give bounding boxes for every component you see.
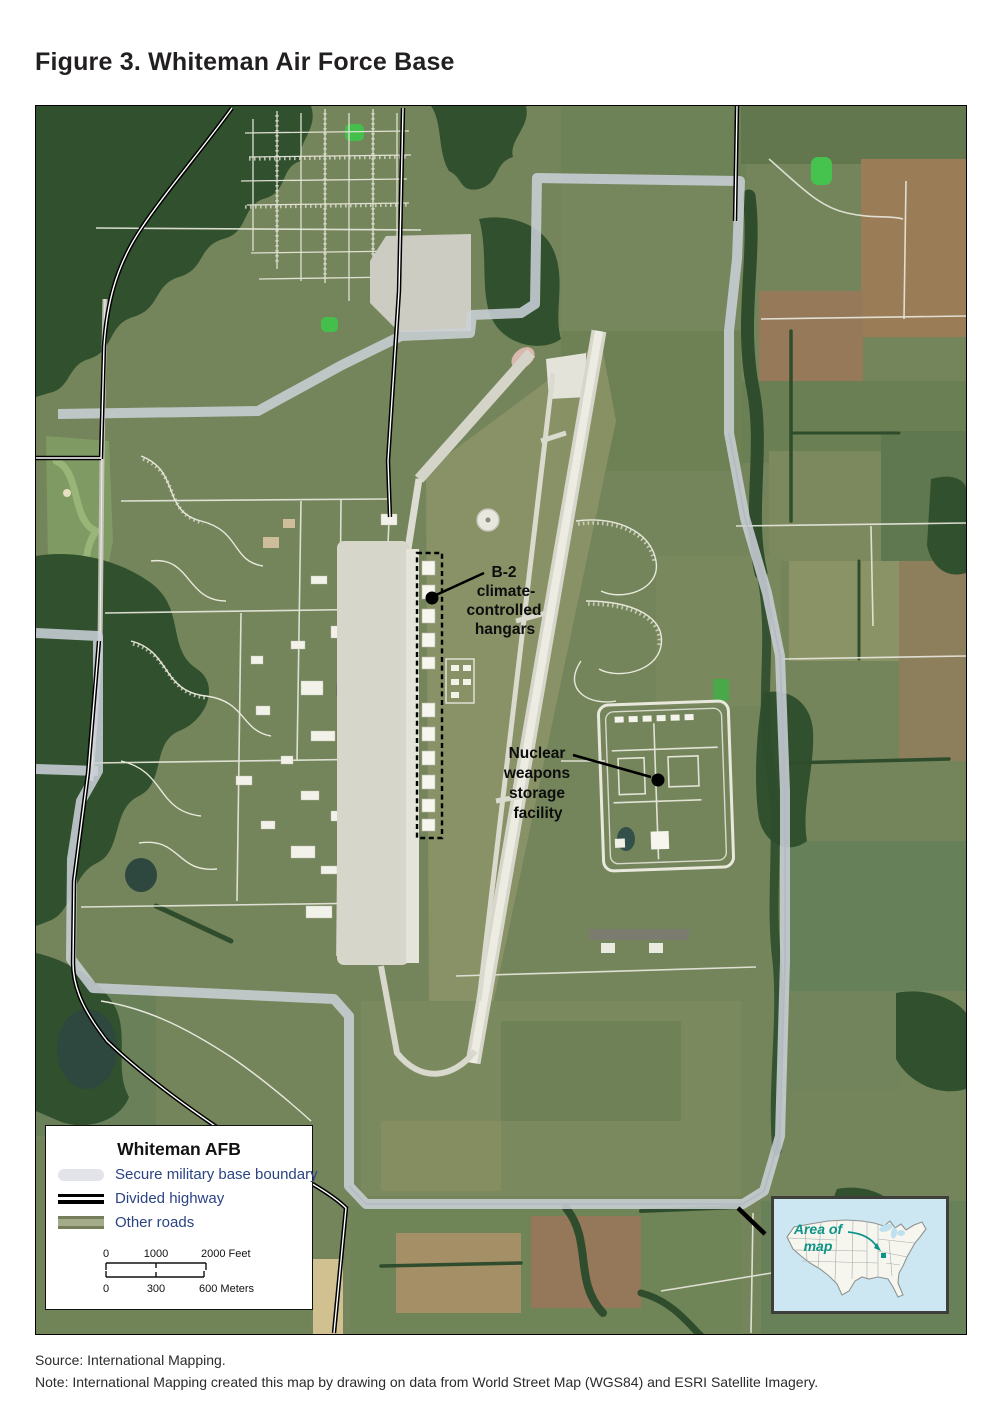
legend-item-highway: Divided highway [58, 1190, 224, 1207]
legend-label-roads: Other roads [115, 1214, 194, 1231]
b2-label-line2: climate- [477, 583, 536, 600]
legend-label-boundary: Secure military base boundary [115, 1166, 318, 1183]
scale-feet-2000: 2000 Feet [201, 1248, 251, 1260]
map-area-marker [881, 1253, 886, 1258]
main-apron [337, 541, 409, 965]
figure-page: Figure 3. Whiteman Air Force Base [0, 0, 1000, 1418]
b2-marker-dot [426, 592, 439, 605]
scale-feet-0: 0 [103, 1248, 109, 1260]
note-line: Note: International Mapping created this… [35, 1371, 818, 1393]
other-roads-symbol [58, 1216, 104, 1229]
legend-label-highway: Divided highway [115, 1190, 224, 1207]
nuclear-label-line1: Nuclear [509, 745, 566, 762]
nuclear-label-line3: storage [509, 785, 565, 802]
north-apron [370, 234, 471, 332]
b2-label-line3: controlled [467, 602, 542, 619]
divided-highway-symbol [58, 1194, 104, 1204]
facility-building [651, 831, 670, 850]
nuclear-marker-dot [652, 774, 665, 787]
map-frame: B-2 climate- controlled hangars Nuclear … [35, 105, 967, 1335]
scale-bar: 0 1000 2000 Feet 0 300 600 Meters [46, 1246, 312, 1304]
source-line: Source: International Mapping. [35, 1349, 818, 1371]
b2-label-line4: hangars [475, 621, 535, 638]
legend-title: Whiteman AFB [46, 1139, 312, 1160]
inset-label-line2: map [804, 1238, 833, 1254]
boundary-symbol [58, 1169, 104, 1181]
scale-meters-300: 300 [147, 1283, 165, 1295]
scale-feet-1000: 1000 [144, 1248, 168, 1260]
legend-item-roads: Other roads [58, 1214, 194, 1231]
scale-meters-600: 600 Meters [199, 1283, 255, 1295]
sports-field [713, 679, 729, 701]
inset-label-line1: Area of [793, 1221, 844, 1237]
inset-locator-map: Area of map [771, 1196, 949, 1314]
nuclear-label-line2: weapons [503, 765, 570, 782]
b2-label-line1: B-2 [492, 564, 517, 581]
figure-title: Figure 3. Whiteman Air Force Base [35, 48, 455, 77]
figure-footer: Source: International Mapping. Note: Int… [35, 1349, 818, 1393]
legend-item-boundary: Secure military base boundary [58, 1166, 318, 1183]
scale-meters-0: 0 [103, 1283, 109, 1295]
nuclear-label-line4: facility [513, 805, 562, 822]
map-legend: Whiteman AFB Secure military base bounda… [45, 1125, 313, 1310]
